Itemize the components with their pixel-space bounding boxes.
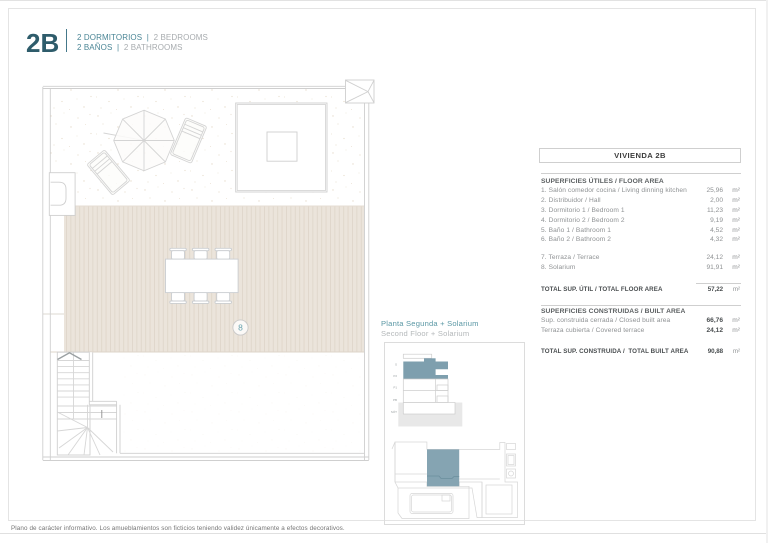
svg-text:SÓT: SÓT (391, 409, 397, 414)
svg-text:P1: P1 (393, 386, 397, 390)
svg-text:PB: PB (393, 398, 397, 402)
svg-text:S: S (395, 363, 397, 367)
svg-text:8: 8 (238, 322, 243, 332)
svg-text:P2: P2 (393, 374, 397, 378)
